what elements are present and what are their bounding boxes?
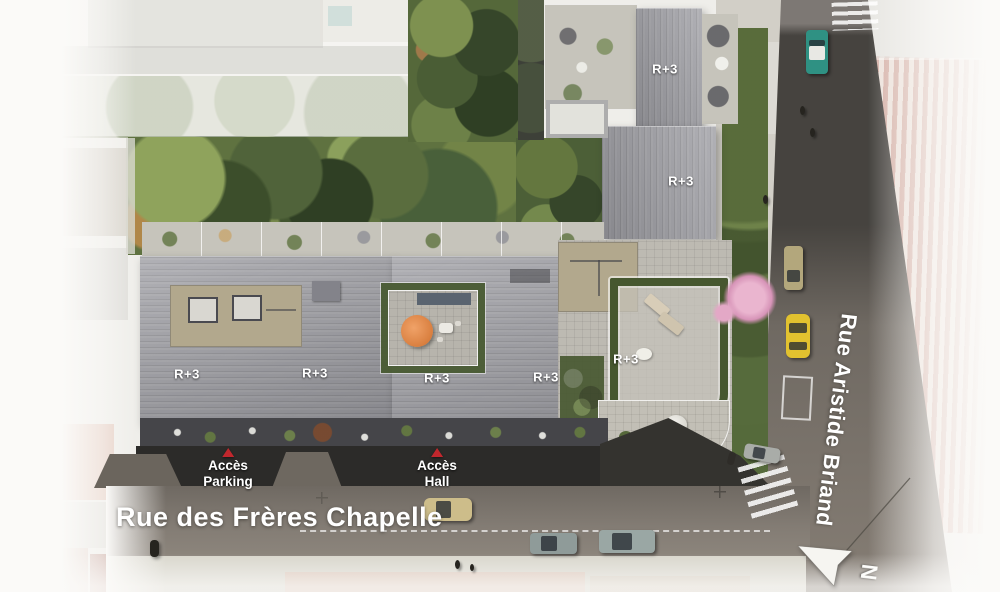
wall-corner: [546, 100, 608, 138]
access-parking-label: Accès Parking: [203, 448, 253, 490]
roof-level-label: R+3: [424, 371, 450, 386]
site-west-wall: [126, 138, 135, 254]
access-hall-label: Accès Hall: [417, 448, 457, 490]
survey-cross: [714, 486, 726, 498]
roof-terrace-band: [142, 222, 604, 257]
pedestrian: [763, 195, 768, 204]
north-arrow: N: [776, 460, 916, 592]
access-line: Parking: [203, 474, 253, 490]
car-gold-parked: [784, 246, 803, 290]
pedestrian: [810, 128, 815, 137]
garden-north: [408, 0, 520, 142]
roof-level-label: R+3: [533, 370, 559, 385]
rooftop-box: [312, 281, 340, 301]
access-line: Accès: [417, 458, 457, 474]
patio-umbrella-terrace: [388, 290, 478, 366]
pedestrian: [470, 564, 474, 571]
access-arrow-icon: [431, 448, 443, 457]
patio-table: [439, 323, 453, 333]
roof-level-label: R+3: [302, 366, 328, 381]
roof-vent: [510, 269, 550, 283]
access-line: Accès: [203, 458, 253, 474]
motorcycle: [150, 540, 159, 557]
roof-level-label: R+3: [668, 174, 694, 189]
roof-pipe: [570, 260, 622, 262]
aerial-site-plan: R+3 R+3 R+3 R+3 R+3 R+3 R+3 Accès Parkin…: [0, 0, 1000, 592]
roof-terrace-ne: [702, 14, 738, 124]
roof-level-label: R+3: [652, 62, 678, 77]
car-silver-1: [530, 533, 577, 554]
parking-bay-marking: [781, 375, 813, 421]
patio-chair: [455, 321, 461, 326]
parasol-orange: [401, 315, 433, 347]
roof-level-label: R+3: [613, 352, 639, 367]
skylight: [232, 295, 262, 321]
roof-pipe: [598, 260, 600, 296]
blossom-tree-pink-small: [710, 300, 738, 326]
roof-building-ne-2: [602, 126, 716, 239]
roof-building-west: [140, 256, 392, 423]
roof-level-label: R+3: [174, 367, 200, 382]
north-arrow-tail: [840, 478, 910, 558]
north-arrow-dart: [798, 546, 852, 586]
flat-roof-patch: [170, 285, 302, 347]
patio-chair: [437, 337, 443, 342]
sun-lounger: [657, 311, 684, 336]
roof-pipe: [266, 309, 296, 311]
path-dark-top: [518, 0, 544, 140]
access-line: Hall: [417, 474, 457, 490]
pedestrian: [455, 560, 460, 569]
skylight: [188, 297, 218, 323]
roof-terrace-north: [544, 4, 638, 110]
access-arrow-icon: [222, 448, 234, 457]
pedestrian: [800, 106, 805, 115]
car-teal: [806, 30, 828, 74]
taxi-yellow: [786, 314, 810, 358]
street-name-bottom: Rue des Frères Chapelle: [116, 502, 443, 533]
car-silver-2: [599, 530, 655, 553]
north-letter: N: [856, 563, 883, 582]
patio-wall: [417, 293, 471, 305]
